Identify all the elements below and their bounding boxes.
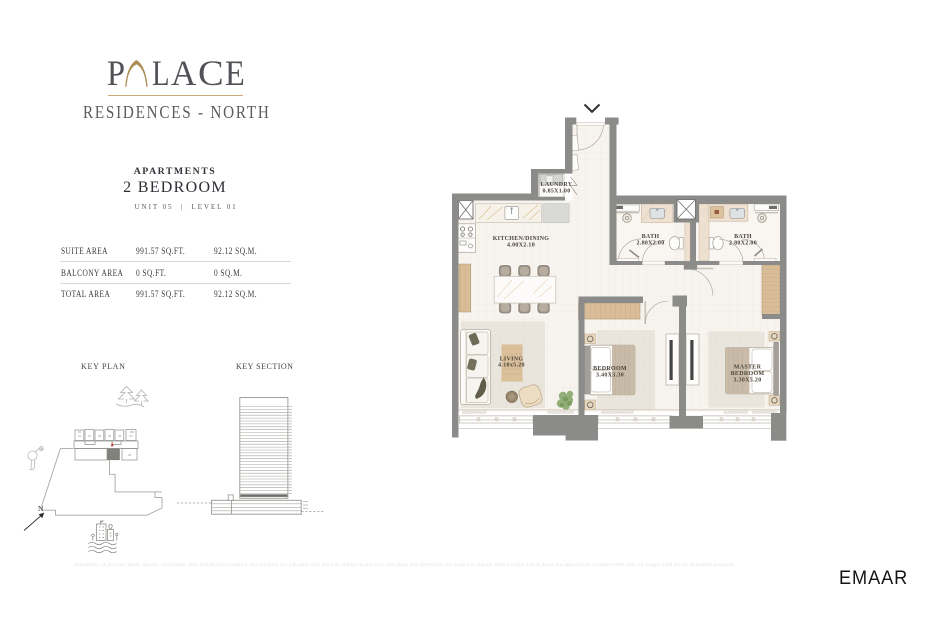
svg-text:3.40X3.30: 3.40X3.30 xyxy=(596,372,624,378)
svg-text:BEDROOM: BEDROOM xyxy=(593,366,627,372)
svg-text:03: 03 xyxy=(129,434,133,438)
svg-text:BATH: BATH xyxy=(734,234,752,240)
svg-text:07: 07 xyxy=(88,434,92,438)
svg-text:4.00X2.10: 4.00X2.10 xyxy=(507,243,535,249)
svg-text:0.85X1.00: 0.85X1.00 xyxy=(542,188,570,194)
svg-text:2.80X2.00: 2.80X2.00 xyxy=(729,240,757,246)
svg-text:MASTER: MASTER xyxy=(734,364,762,370)
svg-text:4.10x5.20: 4.10x5.20 xyxy=(498,363,525,369)
svg-text:KITCHEN/DINING: KITCHEN/DINING xyxy=(493,236,550,242)
svg-text:02: 02 xyxy=(118,434,122,438)
svg-text:LIVING: LIVING xyxy=(500,356,524,362)
svg-text:01: 01 xyxy=(78,434,82,438)
svg-text:2.80X2.00: 2.80X2.00 xyxy=(636,240,664,246)
svg-text:N: N xyxy=(38,504,44,513)
svg-text:BEDROOM: BEDROOM xyxy=(731,371,765,377)
svg-text:06: 06 xyxy=(98,434,102,438)
svg-text:3.30X5.20: 3.30X5.20 xyxy=(733,378,761,384)
svg-text:05: 05 xyxy=(108,434,112,438)
svg-text:04: 04 xyxy=(128,453,132,457)
svg-text:LAUNDRY: LAUNDRY xyxy=(541,182,573,188)
svg-text:BATH: BATH xyxy=(642,234,660,240)
